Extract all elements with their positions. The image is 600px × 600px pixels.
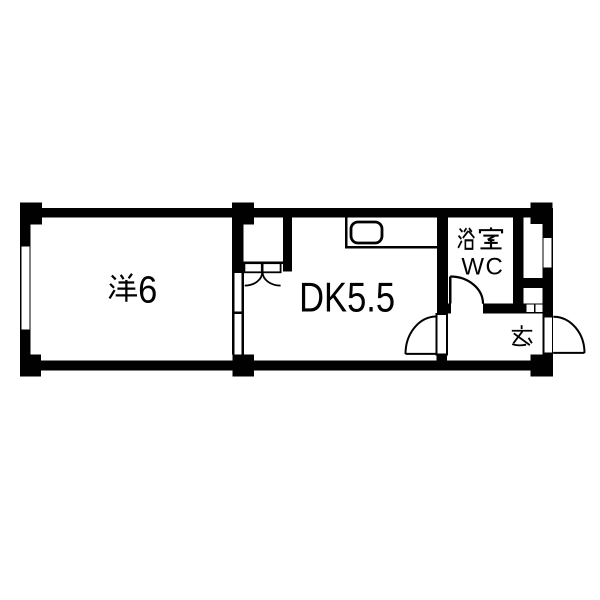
svg-text:6: 6 [138,269,157,311]
svg-text:DK5.5: DK5.5 [299,273,395,320]
svg-text:WC: WC [461,254,503,281]
